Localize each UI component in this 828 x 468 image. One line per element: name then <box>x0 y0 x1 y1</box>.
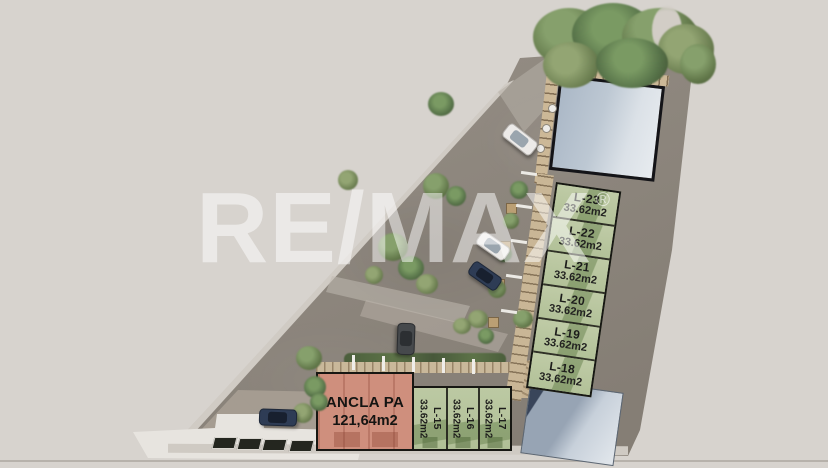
pergola-beam <box>442 358 445 373</box>
tree <box>478 328 494 344</box>
lot-area: 33.62m2 <box>543 336 588 354</box>
tree <box>468 310 488 328</box>
planter-box <box>488 317 499 328</box>
pergola-beam <box>472 359 475 374</box>
lot-L-16: L-16 33.62m2 <box>446 388 478 449</box>
anchor-unit-area: 121,64m2 <box>332 413 397 429</box>
door-mark <box>372 432 398 447</box>
car-windows <box>268 412 287 424</box>
lot-area: 33.62m2 <box>553 269 598 287</box>
tree-canopy <box>680 44 716 84</box>
tree <box>510 181 528 199</box>
door-mark <box>423 437 438 448</box>
planter-grate <box>262 439 288 451</box>
tree <box>453 318 471 334</box>
main-building-roof <box>549 74 665 181</box>
lot-L-17: L-17 33.62m2 <box>478 388 510 449</box>
anchor-unit: ANCLA PA 121,64m2 <box>316 372 414 451</box>
lot-area: 33.62m2 <box>548 303 593 321</box>
pergola-beam <box>352 355 355 370</box>
tree <box>365 266 383 284</box>
lot-label: L-15 <box>430 399 444 438</box>
tree <box>338 170 358 190</box>
lot-area: 33.62m2 <box>449 399 463 438</box>
tree <box>416 274 438 294</box>
car-dark <box>396 323 415 356</box>
car-navy <box>259 408 298 426</box>
patio-table <box>548 104 557 113</box>
tree <box>503 213 519 229</box>
lot-area: 33.62m2 <box>563 202 608 220</box>
lot-label-group: L-17 33.62m2 <box>481 399 509 438</box>
lot-label: L-17 <box>495 399 509 438</box>
lot-L-15: L-15 33.62m2 <box>414 388 446 449</box>
street-edge-line <box>0 460 828 462</box>
door-mark <box>456 437 471 448</box>
car-windows <box>400 330 412 346</box>
site-plan-render: L-23 33.62m2 L-22 33.62m2 L-21 33.62m2 L… <box>0 0 828 468</box>
tree <box>310 393 328 411</box>
door-mark <box>488 437 503 448</box>
lot-area: 33.62m2 <box>558 235 603 253</box>
lot-area: 33.62m2 <box>416 399 430 438</box>
lot-area: 33.62m2 <box>481 399 495 438</box>
planter-grate <box>237 438 263 450</box>
tree <box>428 92 454 116</box>
anchor-unit-label: ANCLA PA <box>326 394 404 411</box>
tree-canopy <box>543 42 599 88</box>
planter-grate <box>212 437 238 449</box>
lot-label: L-16 <box>463 399 477 438</box>
door-mark <box>334 432 360 447</box>
pergola-beam <box>412 357 415 372</box>
tree <box>446 186 466 206</box>
lot-area: 33.62m2 <box>538 371 583 389</box>
tree-canopy <box>596 38 668 88</box>
patio-table <box>542 124 551 133</box>
lot-row: L-15 33.62m2 L-16 33.62m2 L-17 33.62m2 <box>412 386 512 451</box>
lot-label-group: L-16 33.62m2 <box>449 399 477 438</box>
tree <box>296 346 322 370</box>
lot-label-group: L-15 33.62m2 <box>416 399 444 438</box>
pergola-beam <box>382 356 385 371</box>
planter-grate <box>289 440 315 452</box>
